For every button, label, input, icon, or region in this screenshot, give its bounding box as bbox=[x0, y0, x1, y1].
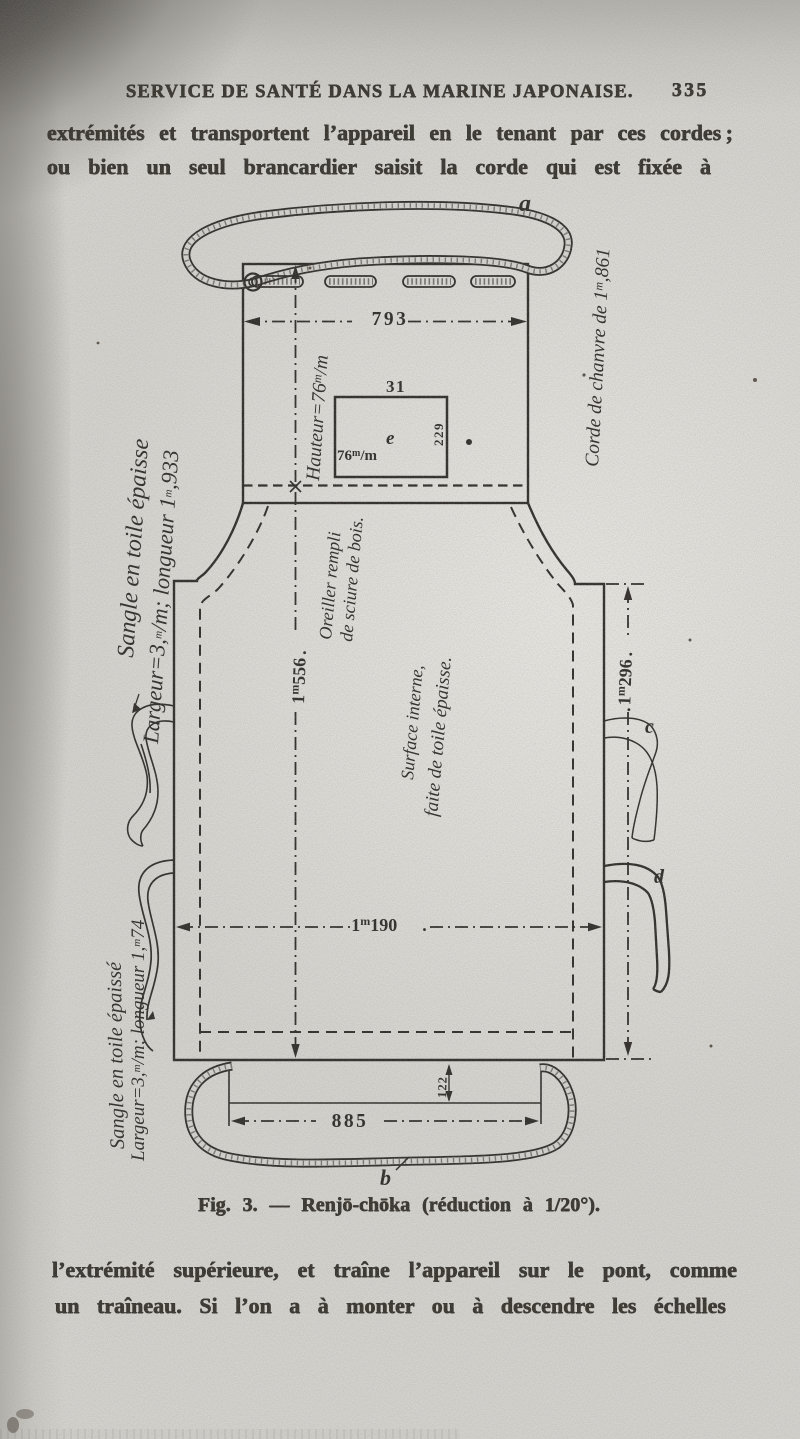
svg-text:122: 122 bbox=[435, 1076, 450, 1098]
svg-text:d: d bbox=[654, 866, 665, 888]
svg-text:Surface interne,: Surface interne, bbox=[397, 664, 427, 780]
svg-text:31: 31 bbox=[386, 377, 406, 396]
svg-text:c: c bbox=[645, 716, 654, 738]
svg-text:Largeur=3,m/m; longueur 1,m74: Largeur=3,m/m; longueur 1,m74 bbox=[128, 919, 149, 1162]
svg-text:76m/m: 76m/m bbox=[337, 448, 378, 464]
svg-text:a: a bbox=[519, 191, 531, 217]
svg-text:e: e bbox=[386, 428, 395, 449]
svg-text:.1m296.: .1m296. bbox=[613, 651, 636, 712]
svg-text:Sangle en toile épaissé: Sangle en toile épaissé bbox=[104, 961, 129, 1150]
svg-text:229: 229 bbox=[431, 422, 446, 446]
svg-text:faite de toile épaisse.: faite de toile épaisse. bbox=[421, 656, 456, 818]
svg-text:b: b bbox=[380, 1165, 391, 1190]
svg-text:Corde de chanvre de 1m,861: Corde de chanvre de 1m,861 bbox=[582, 247, 614, 467]
svg-text:885: 885 bbox=[332, 1111, 369, 1132]
svg-text:Hauteur=76m/m: Hauteur=76m/m bbox=[303, 354, 333, 482]
svg-text:1m556.: 1m556. bbox=[287, 650, 310, 704]
svg-text:1m190.: 1m190. bbox=[351, 914, 427, 935]
svg-text:793: 793 bbox=[372, 309, 409, 330]
